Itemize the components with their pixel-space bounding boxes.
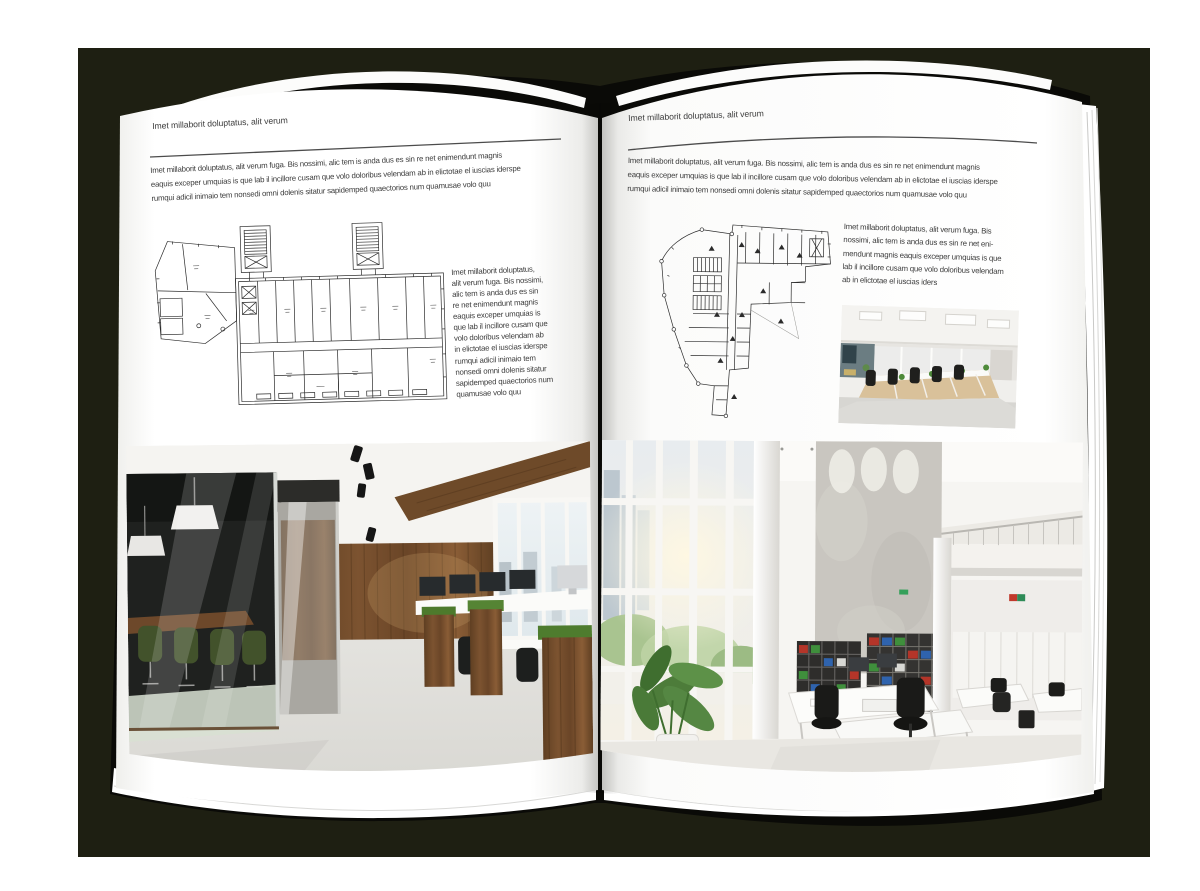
left-rooms [684, 313, 751, 400]
glass-meeting-room [126, 472, 280, 742]
door [990, 350, 1013, 381]
room-labels [193, 259, 438, 390]
column-2 [933, 538, 952, 724]
right-floor-plan [640, 217, 840, 426]
node-circles [658, 227, 734, 417]
right-side-paragraph: Imet millaborit doluptatus, alit verum f… [842, 220, 1005, 291]
right-small-photo [838, 305, 1019, 429]
corridor [726, 234, 737, 370]
left-office-photo [126, 441, 594, 791]
right-wing-rooms [737, 232, 831, 305]
right-intro-paragraph: Imet millaborit doluptatus, alit verum f… [627, 154, 1068, 205]
stair-tower-right [352, 223, 383, 276]
column [752, 441, 780, 739]
stair-tower-left [240, 226, 271, 279]
magazine-mockup: Imet millaborit doluptatus, alit verum I… [0, 0, 1200, 891]
left-side-paragraph: Imet millaborit doluptatus, alit verum f… [451, 263, 554, 400]
angled-wing [154, 240, 237, 345]
right-office-photo [600, 440, 1083, 795]
left-floor-plan [152, 219, 449, 415]
main-wing [235, 273, 446, 405]
safety-signs [1009, 594, 1025, 601]
exit-sign [899, 590, 908, 595]
glass-reflective-panel [277, 480, 341, 715]
core [693, 258, 722, 310]
